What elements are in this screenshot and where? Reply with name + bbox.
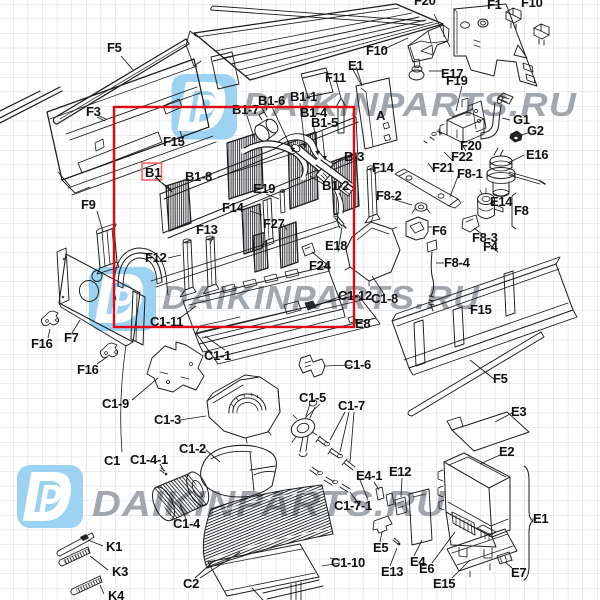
svg-text:F13: F13 [196,222,218,237]
svg-text:C1-3: C1-3 [154,412,181,427]
svg-text:C1-7: C1-7 [338,398,365,413]
svg-text:F10: F10 [366,43,388,58]
svg-text:E19: E19 [253,181,275,196]
svg-text:E8: E8 [355,316,370,331]
svg-text:F8: F8 [514,203,529,218]
svg-text:F7: F7 [64,330,79,345]
svg-text:C2: C2 [183,576,199,591]
svg-text:F12: F12 [145,250,167,265]
svg-text:F3: F3 [86,104,101,119]
svg-text:E1: E1 [533,511,548,526]
svg-text:C1-6: C1-6 [344,357,371,372]
svg-text:F9: F9 [81,197,96,212]
svg-text:F20: F20 [414,0,436,8]
svg-text:F16: F16 [31,336,53,351]
svg-text:F8-4: F8-4 [444,255,471,270]
svg-text:F11: F11 [325,70,346,85]
svg-text:C1-7-1: C1-7-1 [334,498,372,513]
svg-text:E18: E18 [325,238,347,253]
svg-text:E12: E12 [389,464,411,479]
svg-text:C1-5: C1-5 [299,390,326,405]
svg-text:F5: F5 [107,40,122,55]
svg-text:B1: B1 [145,165,162,180]
svg-text:F10: F10 [521,0,543,10]
svg-text:C1-8: C1-8 [371,291,398,306]
svg-text:F24: F24 [309,258,332,273]
svg-text:E16: E16 [526,147,548,162]
svg-text:B1-8: B1-8 [185,169,212,184]
svg-text:F4: F4 [483,239,499,254]
svg-text:E2: E2 [499,444,514,459]
svg-text:F15: F15 [470,302,492,317]
svg-text:A: A [376,108,386,123]
svg-text:B1-6: B1-6 [258,93,285,108]
svg-text:K3: K3 [112,564,128,579]
svg-text:E13: E13 [381,564,403,579]
svg-text:E15: E15 [433,576,455,591]
svg-text:K4: K4 [108,588,125,600]
svg-text:C1-4: C1-4 [173,516,201,531]
svg-text:F8-1: F8-1 [457,166,483,181]
svg-text:F22: F22 [451,149,473,164]
svg-text:B1-2: B1-2 [322,178,349,193]
svg-text:K1: K1 [106,539,122,554]
svg-text:F8-2: F8-2 [376,188,402,203]
svg-text:F27: F27 [263,216,285,231]
svg-text:F5: F5 [493,371,508,386]
svg-text:E1: E1 [348,58,363,73]
svg-text:G2: G2 [527,123,544,138]
svg-text:E14: E14 [490,194,513,209]
svg-text:C1-10: C1-10 [331,555,365,570]
svg-text:E4-1: E4-1 [356,468,382,483]
svg-text:F1: F1 [487,0,502,12]
svg-text:F16: F16 [77,362,99,377]
svg-text:F14: F14 [372,160,395,175]
svg-text:B1-7: B1-7 [232,102,259,117]
svg-text:C1: C1 [104,453,120,468]
svg-text:F21: F21 [432,160,454,175]
svg-text:F6: F6 [432,223,447,238]
svg-text:E7: E7 [511,565,526,580]
svg-text:C1-4-1: C1-4-1 [130,452,168,467]
svg-text:E5: E5 [373,540,388,555]
svg-text:E3: E3 [511,404,526,419]
svg-text:E6: E6 [419,561,434,576]
svg-text:C1-2: C1-2 [179,441,206,456]
svg-text:B1-5: B1-5 [311,115,338,130]
svg-text:C1-1: C1-1 [204,348,231,363]
svg-text:C1-9: C1-9 [102,396,129,411]
svg-text:F15: F15 [163,134,185,149]
svg-text:B1-1: B1-1 [290,89,317,104]
svg-text:F14: F14 [222,200,245,215]
svg-text:F19: F19 [446,73,468,88]
